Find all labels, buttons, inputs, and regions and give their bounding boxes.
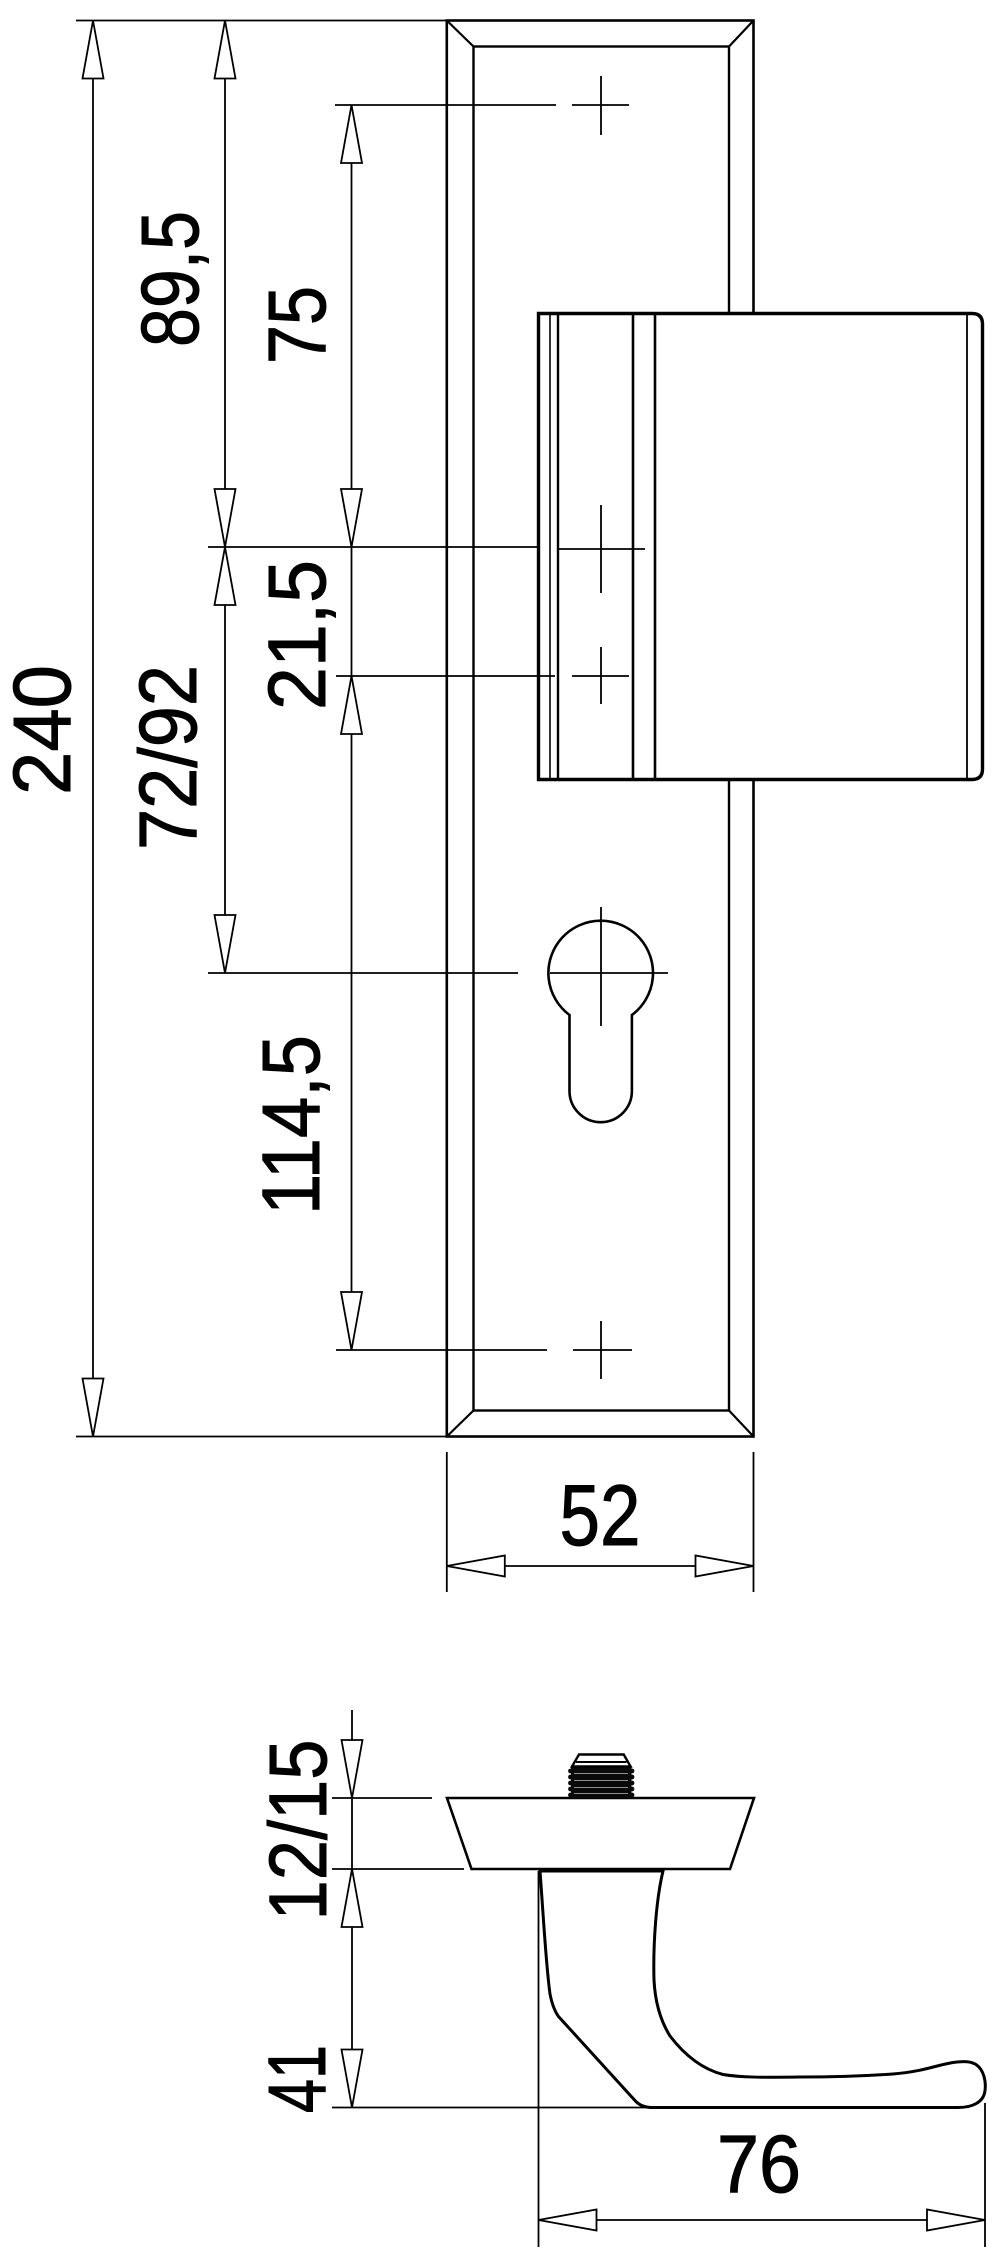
svg-text:76: 76 [717, 2119, 801, 2210]
svg-text:21,5: 21,5 [252, 560, 343, 710]
svg-text:12/15: 12/15 [253, 1740, 344, 1921]
svg-text:72/92: 72/92 [123, 665, 214, 850]
svg-text:41: 41 [252, 2045, 343, 2113]
svg-text:75: 75 [252, 286, 343, 364]
svg-text:240: 240 [0, 665, 88, 795]
svg-text:89,5: 89,5 [125, 211, 216, 347]
svg-text:52: 52 [560, 1468, 641, 1564]
svg-text:114,5: 114,5 [246, 1035, 337, 1215]
